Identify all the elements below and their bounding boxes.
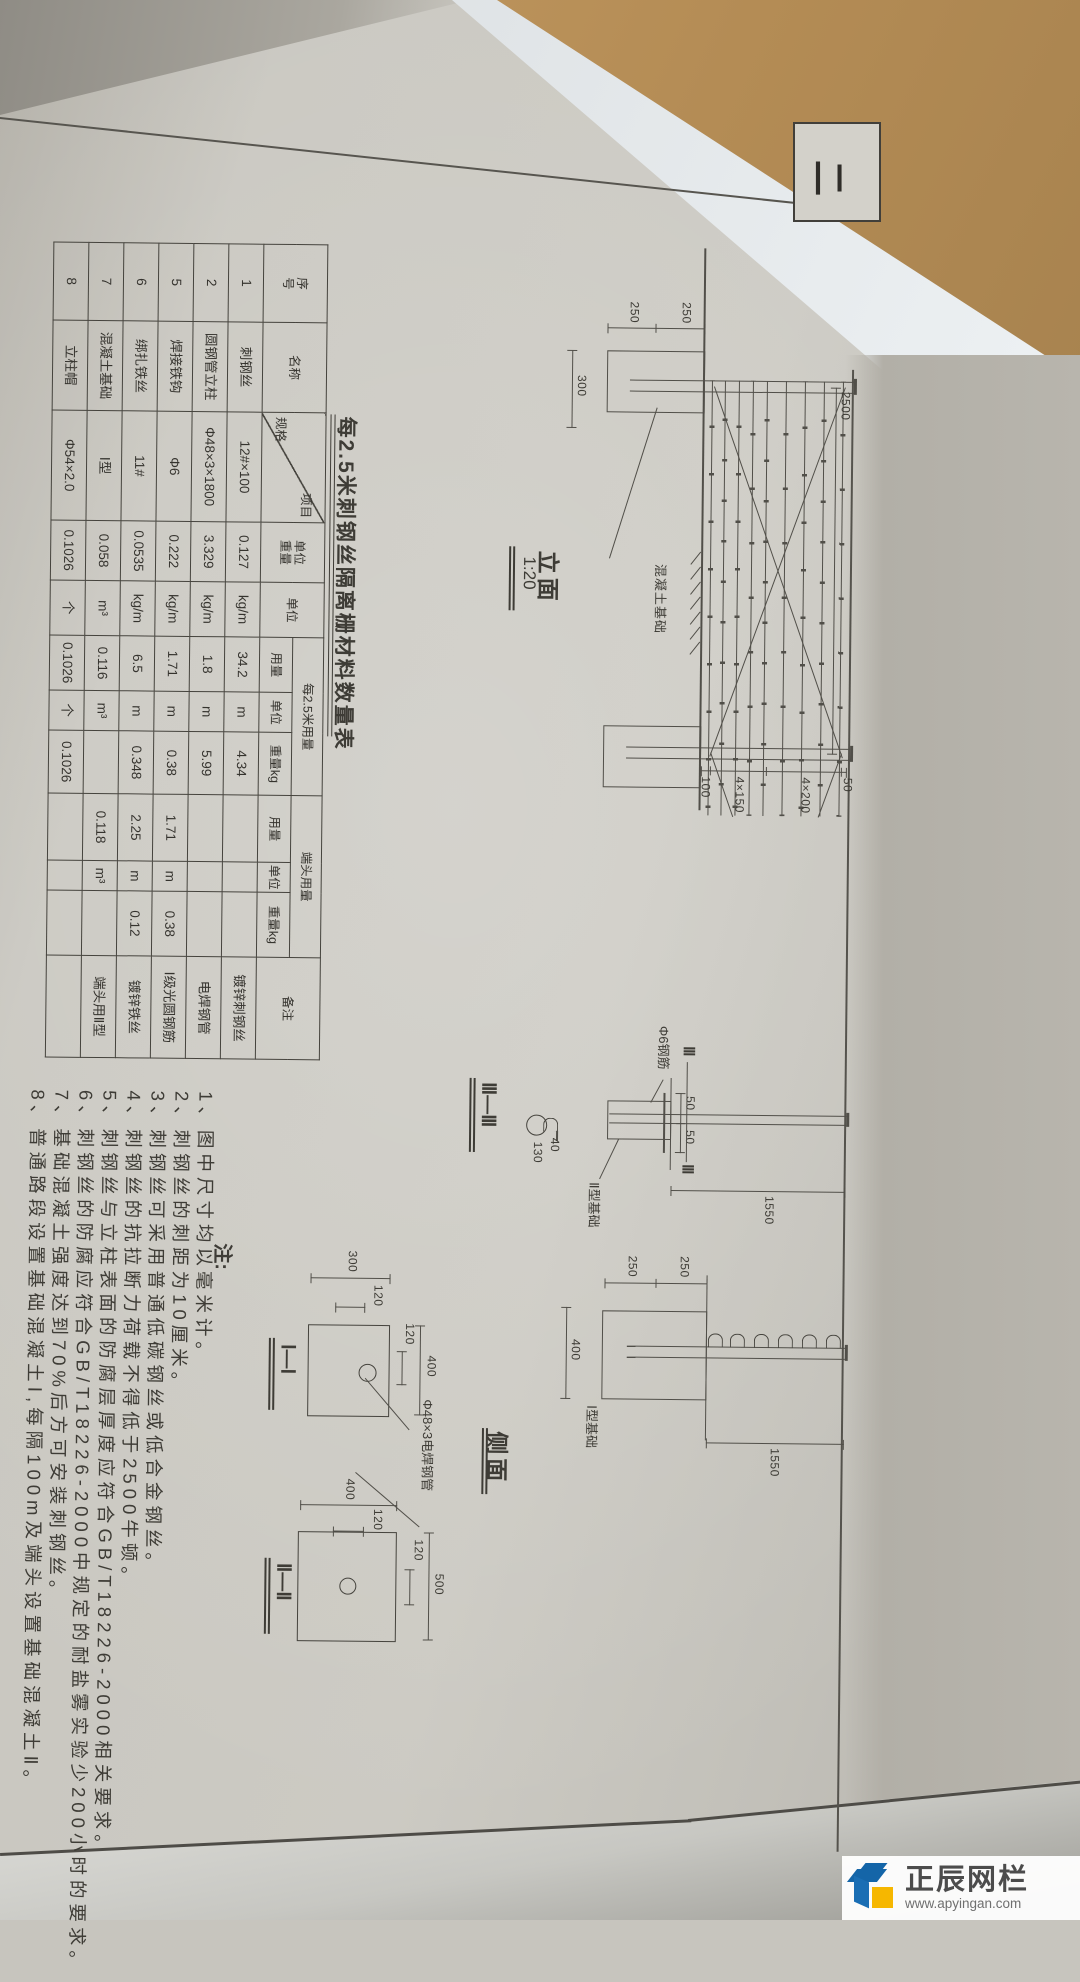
section-mark: Ⅲ xyxy=(679,1164,697,1175)
hatch-stroke xyxy=(689,627,700,640)
dim-line-h1 xyxy=(670,1190,845,1193)
foundation-block xyxy=(607,350,706,413)
title-underline xyxy=(264,1558,266,1634)
section-mark: Ⅲ xyxy=(680,1046,698,1057)
post-cap xyxy=(845,1345,848,1361)
wire-hook xyxy=(754,1334,769,1348)
hook-detail xyxy=(543,1118,558,1132)
dim-line-b-width xyxy=(565,1307,567,1399)
section1-square xyxy=(307,1324,390,1417)
section1-title: Ⅰ—Ⅰ xyxy=(276,1344,299,1374)
dim-250b: 250 xyxy=(626,1256,640,1278)
col-unit: 单位 xyxy=(259,692,292,732)
dim-sec1-120w: 120 xyxy=(371,1285,385,1307)
dim-line xyxy=(409,1569,410,1605)
col-remark: 备注 xyxy=(255,957,320,1060)
dim-line-h2 xyxy=(706,1442,844,1444)
dim-1550a: 1550 xyxy=(762,1196,776,1225)
materials-table: 序号名称项目规格单位重量单位每2.5米用量端头用量备注用量单位重量kg用量单位重… xyxy=(45,241,329,1060)
dim-250: 250 xyxy=(628,302,642,324)
engineering-drawing: 每2.5米刺钢丝隔离栅材料数量表 序号名称项目规格单位重量单位每2.5米用量端头… xyxy=(18,83,866,1857)
dim-tick xyxy=(766,767,767,776)
foundation-b xyxy=(601,1310,707,1400)
foundation-block xyxy=(603,725,702,788)
section3-title: Ⅲ—Ⅲ xyxy=(476,1082,499,1127)
hatch-stroke xyxy=(690,612,701,625)
dim-40: 40 xyxy=(548,1138,562,1153)
wire-hook xyxy=(802,1334,817,1348)
dim-line-span xyxy=(832,388,837,755)
dim-250: 250 xyxy=(680,302,694,324)
dim-tick xyxy=(841,768,842,777)
post-circle xyxy=(339,1578,356,1595)
page-curl-shadow xyxy=(845,355,1080,1920)
dim-1550b: 1550 xyxy=(767,1448,781,1477)
post-cap xyxy=(850,746,853,762)
dim-line xyxy=(311,1277,391,1279)
dim-line xyxy=(335,1307,365,1308)
col-end: 端头用量 xyxy=(289,796,322,958)
foundation-label: 混凝土基础 xyxy=(651,564,671,634)
dim-line xyxy=(401,1351,402,1385)
dim-4x200: 4×200 xyxy=(798,777,812,813)
leader-line xyxy=(609,407,658,558)
brand-logo-icon xyxy=(848,1863,898,1913)
col-qty: 用量 xyxy=(257,795,291,862)
dim-tick xyxy=(655,1279,656,1288)
dim-100: 100 xyxy=(699,776,713,798)
dim-tick xyxy=(676,1123,685,1124)
wire-hook xyxy=(730,1334,745,1348)
leader-line xyxy=(355,1472,420,1528)
dim-400b: 400 xyxy=(569,1339,583,1361)
dim-sec1-120h: 120 xyxy=(403,1323,417,1345)
brand-url: www.apyingan.com xyxy=(905,1897,1029,1911)
col-name: 名称 xyxy=(262,322,327,413)
leader-line xyxy=(650,1079,664,1102)
dim-sec2-120h: 120 xyxy=(412,1539,426,1561)
base2-label: Ⅱ型基础 xyxy=(585,1182,604,1228)
title-underline xyxy=(513,546,515,610)
col-unit: 单位 xyxy=(257,862,290,892)
post-cap xyxy=(854,379,857,395)
pipe-label: Φ48×3电焊钢管 xyxy=(418,1399,438,1491)
dim-sec2-400: 400 xyxy=(343,1479,357,1501)
col-item-spec: 项目规格 xyxy=(261,412,326,523)
dim-line xyxy=(300,1504,397,1506)
dim-tick xyxy=(710,766,711,775)
wire-hook xyxy=(826,1335,841,1349)
col-weight: 重量kg xyxy=(256,892,290,957)
dim-50: 50 xyxy=(841,778,855,793)
title-underline xyxy=(269,1338,271,1410)
col-unit-weight: 单位重量 xyxy=(260,522,325,583)
hatch-stroke xyxy=(689,642,700,655)
col-weight: 重量kg xyxy=(258,732,292,795)
wire-hook xyxy=(708,1333,723,1347)
section2-title: Ⅱ—Ⅱ xyxy=(271,1563,294,1601)
dim-2500: 2500 xyxy=(839,392,853,421)
dim-250a: 250 xyxy=(678,1256,692,1278)
post-cap xyxy=(846,1113,849,1127)
dim-4x150: 4×150 xyxy=(732,777,746,813)
dim-line xyxy=(428,1533,430,1641)
foundation-a xyxy=(607,1100,671,1140)
dim-sec2-500: 500 xyxy=(432,1574,446,1596)
title-underline xyxy=(509,546,511,610)
hatch-stroke xyxy=(690,597,701,610)
hatch-stroke xyxy=(690,582,701,595)
dim-line-width xyxy=(571,350,573,428)
brand-name: 正辰网栏 xyxy=(905,1865,1029,1895)
logo-left-face xyxy=(854,1876,869,1909)
logo-yellow-face xyxy=(872,1887,893,1908)
elevation-scale: 1:20 xyxy=(519,556,539,589)
col-seq: 序号 xyxy=(263,244,328,323)
dim-sec1-300: 300 xyxy=(346,1251,360,1273)
col-qty: 用量 xyxy=(259,637,293,692)
wire-hook xyxy=(778,1334,793,1348)
col-unit: 单位 xyxy=(260,582,325,638)
dim-130: 130 xyxy=(531,1142,545,1164)
section-cut-line xyxy=(685,1062,687,1162)
watermark: 正辰网栏 www.apyingan.com xyxy=(842,1856,1080,1920)
dim-300: 300 xyxy=(575,375,589,397)
leader-line xyxy=(599,1139,619,1179)
col-per25: 每2.5米用量 xyxy=(291,638,324,796)
hook-bar xyxy=(663,1093,666,1153)
dim-sec1-400: 400 xyxy=(425,1355,439,1377)
hatch-stroke xyxy=(690,567,701,580)
dim-sec2-120w: 120 xyxy=(371,1509,385,1531)
rebar-label: Φ6钢筋 xyxy=(655,1026,674,1070)
base1-label: Ⅰ型基础 xyxy=(583,1405,602,1448)
hatch-stroke xyxy=(690,552,701,565)
title-underline xyxy=(469,1078,471,1152)
dim-tick xyxy=(655,324,656,333)
post-circle xyxy=(358,1364,376,1382)
